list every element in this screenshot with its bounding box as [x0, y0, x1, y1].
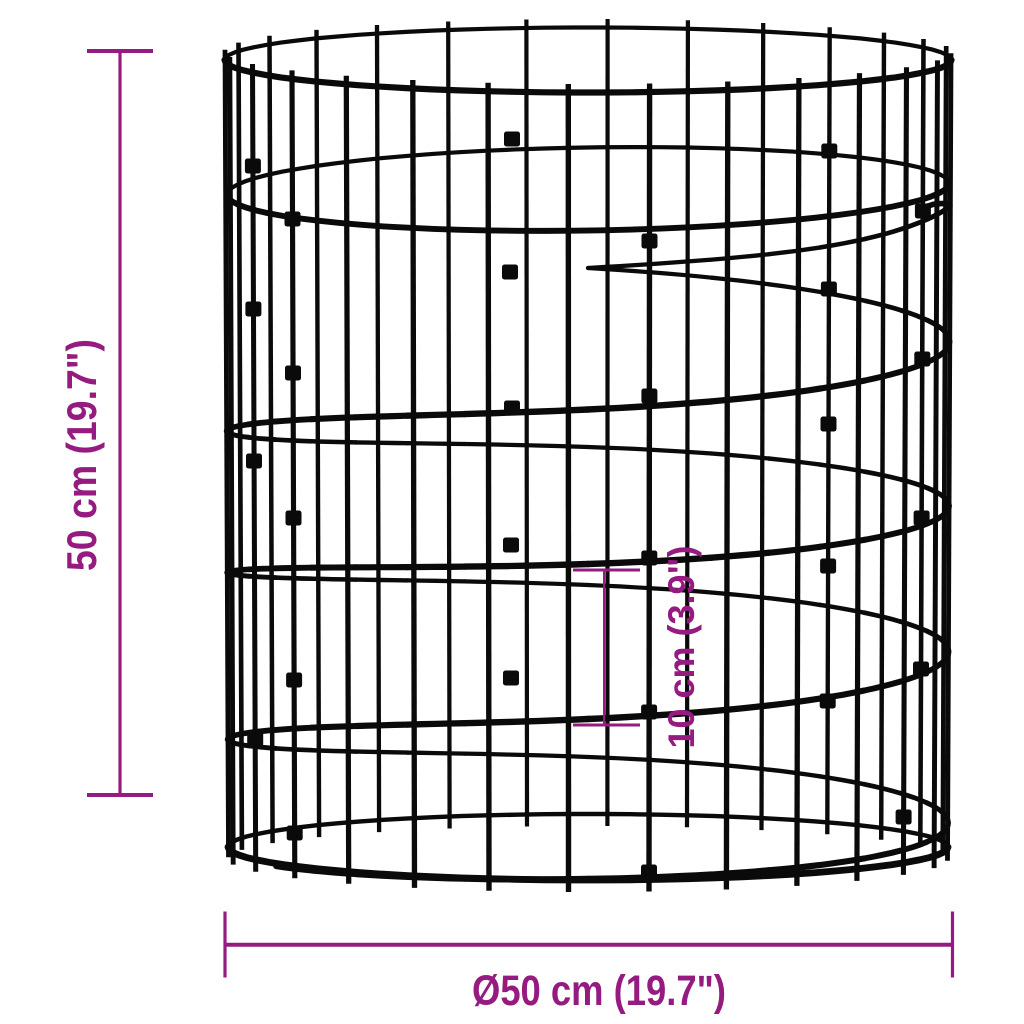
svg-text:50 cm (19.7"): 50 cm (19.7"): [58, 339, 105, 571]
svg-text:Ø50 cm (19.7"): Ø50 cm (19.7"): [472, 968, 726, 1015]
svg-text:10 cm (3.9"): 10 cm (3.9"): [660, 546, 702, 749]
